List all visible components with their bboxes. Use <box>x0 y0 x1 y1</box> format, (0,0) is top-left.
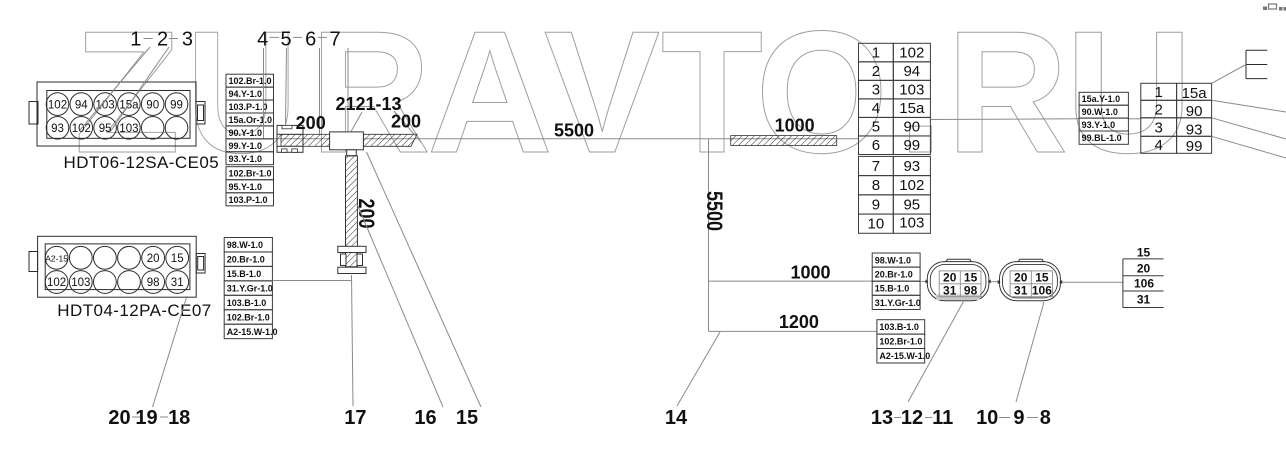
svg-text:9: 9 <box>1013 407 1024 429</box>
svg-text:93.Y-1.0: 93.Y-1.0 <box>229 154 263 164</box>
svg-text:102: 102 <box>48 99 67 111</box>
svg-text:93: 93 <box>51 123 64 135</box>
svg-text:19: 19 <box>135 407 157 429</box>
svg-text:16: 16 <box>414 407 436 429</box>
svg-text:5: 5 <box>280 29 291 51</box>
svg-text:20: 20 <box>1137 261 1151 275</box>
svg-text:2: 2 <box>872 63 880 80</box>
svg-text:20.Br-1.0: 20.Br-1.0 <box>227 255 265 265</box>
svg-text:103: 103 <box>71 277 90 289</box>
svg-text:HDT04-12PA-CE07: HDT04-12PA-CE07 <box>57 301 211 320</box>
svg-text:3: 3 <box>182 29 193 51</box>
svg-text:98.W-1.0: 98.W-1.0 <box>875 255 911 265</box>
svg-text:A2-15.W-1.0: A2-15.W-1.0 <box>879 351 930 361</box>
svg-text:12: 12 <box>901 407 923 429</box>
svg-text:31: 31 <box>1014 284 1028 298</box>
svg-text:93: 93 <box>1186 121 1203 138</box>
svg-text:90: 90 <box>903 119 920 136</box>
svg-text:13: 13 <box>871 407 893 429</box>
svg-text:3: 3 <box>872 82 880 99</box>
svg-text:2: 2 <box>157 29 168 51</box>
svg-text:4: 4 <box>257 29 268 51</box>
svg-text:90.Y-1.0: 90.Y-1.0 <box>229 128 263 138</box>
svg-text:T: T <box>661 0 763 190</box>
svg-text:14: 14 <box>665 407 688 429</box>
svg-text:103.B-1.0: 103.B-1.0 <box>879 322 919 332</box>
svg-text:1200: 1200 <box>779 312 819 332</box>
svg-text:103: 103 <box>119 123 138 135</box>
svg-text:20: 20 <box>147 253 160 265</box>
svg-text:V: V <box>544 0 660 189</box>
svg-text:31.Y.Gr-1.0: 31.Y.Gr-1.0 <box>227 284 273 294</box>
svg-text:98: 98 <box>147 277 160 289</box>
svg-text:102: 102 <box>899 177 924 194</box>
svg-text:15a.Or-1.0: 15a.Or-1.0 <box>229 115 273 125</box>
svg-text:15a: 15a <box>119 99 139 111</box>
svg-text:A2-15.W-1.0: A2-15.W-1.0 <box>227 327 278 337</box>
svg-text:103: 103 <box>899 215 924 232</box>
svg-text:99.Y-1.0: 99.Y-1.0 <box>229 141 263 151</box>
svg-text:102.Br-1.0: 102.Br-1.0 <box>229 76 272 86</box>
svg-text:95: 95 <box>99 123 112 135</box>
svg-text:90: 90 <box>146 99 159 111</box>
svg-text:15: 15 <box>456 407 478 429</box>
svg-text:4: 4 <box>872 100 880 117</box>
svg-text:17: 17 <box>344 407 366 429</box>
svg-text:15: 15 <box>171 253 184 265</box>
svg-text:99: 99 <box>1186 138 1203 155</box>
svg-text:A2-15: A2-15 <box>45 254 68 264</box>
svg-text:103.B-1.0: 103.B-1.0 <box>227 298 267 308</box>
svg-text:R: R <box>947 0 1068 190</box>
svg-text:5: 5 <box>872 119 880 136</box>
svg-text:94.Y-1.0: 94.Y-1.0 <box>229 89 263 99</box>
svg-text:A: A <box>427 0 553 189</box>
svg-text:15.B-1.0: 15.B-1.0 <box>227 269 262 279</box>
svg-text:93.Y-1.0: 93.Y-1.0 <box>1082 120 1116 130</box>
svg-text:94: 94 <box>903 63 920 80</box>
svg-text:99: 99 <box>170 99 183 111</box>
svg-text:98: 98 <box>964 284 978 298</box>
svg-text:102: 102 <box>899 45 924 62</box>
svg-text:1000: 1000 <box>790 263 830 283</box>
svg-text:102: 102 <box>47 277 66 289</box>
svg-text:103.P-1.0: 103.P-1.0 <box>229 195 268 205</box>
svg-text:1: 1 <box>130 29 141 51</box>
svg-text:31: 31 <box>1137 293 1151 307</box>
svg-text:93: 93 <box>903 158 920 175</box>
svg-text:102.Br-1.0: 102.Br-1.0 <box>229 169 272 179</box>
svg-text:7: 7 <box>872 158 880 175</box>
svg-text:18: 18 <box>168 407 190 429</box>
svg-text:99.BL-1.0: 99.BL-1.0 <box>1082 133 1122 143</box>
svg-text:103.P-1.0: 103.P-1.0 <box>229 102 268 112</box>
svg-text:200: 200 <box>296 113 326 133</box>
svg-text:94: 94 <box>75 99 88 111</box>
svg-text:15: 15 <box>1035 271 1049 285</box>
svg-text:HDT06-12SA-CE05: HDT06-12SA-CE05 <box>64 153 220 172</box>
svg-text:6: 6 <box>305 29 316 51</box>
svg-text:4: 4 <box>1155 137 1163 154</box>
svg-text:95.Y-1.0: 95.Y-1.0 <box>229 182 263 192</box>
svg-text:15: 15 <box>1137 246 1151 260</box>
svg-text:1: 1 <box>872 45 880 62</box>
svg-text:11: 11 <box>932 407 953 429</box>
svg-text:103: 103 <box>899 82 924 99</box>
svg-text:1: 1 <box>1155 84 1163 101</box>
svg-text:106: 106 <box>1032 284 1052 298</box>
svg-text:9: 9 <box>872 196 880 213</box>
svg-text:98.W-1.0: 98.W-1.0 <box>227 240 263 250</box>
svg-text:15: 15 <box>964 271 978 285</box>
svg-text:102.Br-1.0: 102.Br-1.0 <box>227 312 270 322</box>
svg-text:99: 99 <box>903 137 920 154</box>
svg-text:103: 103 <box>96 99 115 111</box>
svg-text:6: 6 <box>872 137 880 154</box>
svg-text:20: 20 <box>943 271 957 285</box>
svg-text:90: 90 <box>1186 103 1203 120</box>
svg-text:7: 7 <box>329 29 340 51</box>
svg-text:31: 31 <box>943 284 957 298</box>
svg-text:20: 20 <box>108 407 130 429</box>
svg-text:15.B-1.0: 15.B-1.0 <box>875 284 910 294</box>
svg-text:20: 20 <box>1014 271 1028 285</box>
svg-text:15a.Y-1.0: 15a.Y-1.0 <box>1082 94 1121 104</box>
svg-text:20.Br-1.0: 20.Br-1.0 <box>875 270 913 280</box>
svg-text:106: 106 <box>1134 277 1154 291</box>
svg-text:102.Br-1.0: 102.Br-1.0 <box>879 337 922 347</box>
svg-text:1000: 1000 <box>775 116 815 136</box>
svg-text:200: 200 <box>391 112 421 132</box>
svg-text:95: 95 <box>903 196 920 213</box>
svg-text:5500: 5500 <box>554 121 594 141</box>
svg-text:8: 8 <box>1040 407 1051 429</box>
svg-text:15a: 15a <box>1182 85 1208 102</box>
svg-text:31.Y.Gr-1.0: 31.Y.Gr-1.0 <box>875 298 921 308</box>
svg-text:2: 2 <box>1155 101 1163 118</box>
svg-text:10: 10 <box>868 216 885 233</box>
svg-text:5500: 5500 <box>701 191 725 231</box>
svg-text:10: 10 <box>976 407 998 429</box>
svg-text:15a: 15a <box>899 100 925 117</box>
svg-text:90.W-1.0: 90.W-1.0 <box>1082 107 1118 117</box>
svg-text:31: 31 <box>171 277 184 289</box>
svg-text:8: 8 <box>872 177 880 194</box>
svg-text:O: O <box>756 0 889 189</box>
svg-text:3: 3 <box>1155 119 1163 136</box>
